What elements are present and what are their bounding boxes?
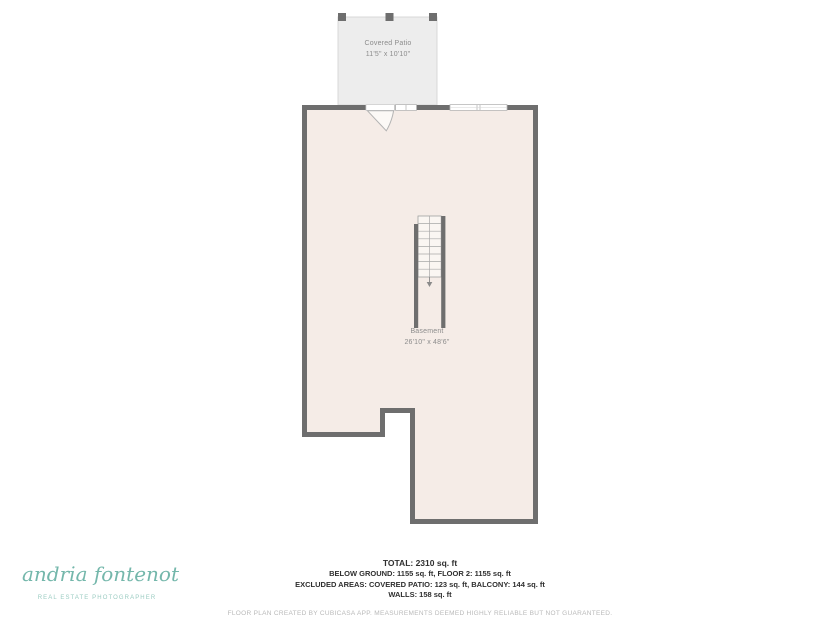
brand-logo: andria fontenot REAL ESTATE PHOTOGRAPHER <box>22 554 172 601</box>
basement-name: Basement <box>327 326 527 337</box>
covered-patio-dimensions: 11'5" x 10'10" <box>288 49 488 60</box>
disclaimer-text: FLOOR PLAN CREATED BY CUBICASA APP. MEAS… <box>0 610 840 617</box>
stair-wall-right <box>441 216 445 328</box>
window-double <box>450 105 507 111</box>
floor-plan-page: Covered Patio 11'5" x 10'10" Basement 26… <box>0 0 840 630</box>
basement-label: Basement 26'10" x 48'6" <box>327 326 527 348</box>
brand-tagline: REAL ESTATE PHOTOGRAPHER <box>22 595 172 601</box>
covered-patio-label: Covered Patio 11'5" x 10'10" <box>288 38 488 60</box>
basement-dimensions: 26'10" x 48'6" <box>327 337 527 348</box>
stair-wall-left <box>414 224 418 328</box>
patio-post-icon <box>338 13 346 21</box>
covered-patio-floor <box>338 17 437 105</box>
floor-plan-drawing <box>0 0 840 630</box>
patio-post-icon <box>386 13 394 21</box>
brand-name: andria fontenot <box>22 554 172 594</box>
exterior-wall-outline <box>305 108 536 522</box>
patio-post-icon <box>429 13 437 21</box>
door-opening <box>366 105 395 111</box>
window-small <box>396 105 417 111</box>
covered-patio-name: Covered Patio <box>288 38 488 49</box>
